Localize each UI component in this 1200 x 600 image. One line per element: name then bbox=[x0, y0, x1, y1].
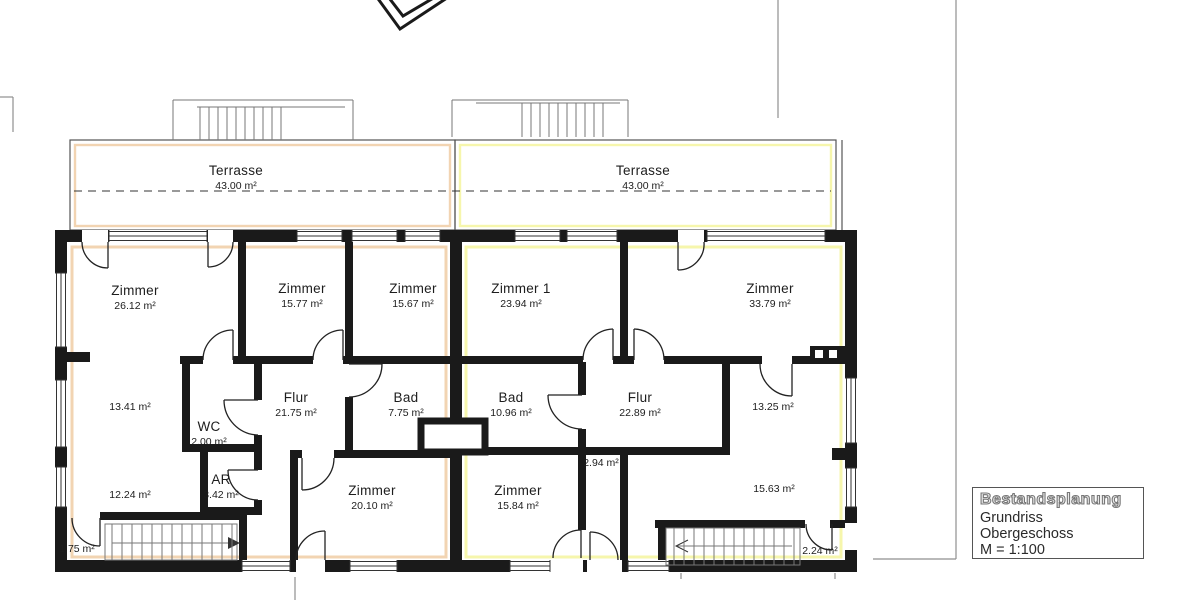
room-name: Zimmer bbox=[278, 281, 326, 297]
room-area: 20.10 m² bbox=[348, 500, 396, 513]
dim-label-left-lower: 12.24 m² bbox=[109, 489, 150, 502]
room-label-zimmer-26: Zimmer 26.12 m² bbox=[111, 283, 159, 313]
dim-label-right-landing: 2.24 m² bbox=[802, 545, 838, 558]
room-area: 26.12 m² bbox=[111, 300, 159, 313]
room-name: Bad bbox=[388, 390, 424, 406]
room-label-flur-left: Flur 21.75 m² bbox=[275, 390, 316, 420]
room-name: WC bbox=[191, 419, 227, 435]
room-label-zimmer-3379: Zimmer 33.79 m² bbox=[746, 281, 794, 311]
room-area: 23.94 m² bbox=[491, 298, 550, 311]
room-area: 15.84 m² bbox=[494, 500, 542, 513]
room-name: Zimmer bbox=[746, 281, 794, 297]
room-name: AR bbox=[203, 472, 239, 488]
room-area: 2.00 m² bbox=[191, 436, 227, 449]
chimney-block bbox=[421, 421, 485, 452]
room-area: 15.77 m² bbox=[278, 298, 326, 311]
title-block: Bestandsplanung Grundriss Obergeschoss M… bbox=[972, 487, 1144, 559]
room-area: 22.89 m² bbox=[619, 407, 660, 420]
room-label-zimmer-1567: Zimmer 15.67 m² bbox=[389, 281, 437, 311]
room-name: Terrasse bbox=[616, 163, 670, 179]
room-label-terrasse-left: Terrasse 43.00 m² bbox=[209, 163, 263, 193]
title-block-subtitle: Grundriss Obergeschoss bbox=[980, 510, 1136, 542]
room-area: 43.00 m² bbox=[616, 180, 670, 193]
staircase-left bbox=[105, 524, 240, 560]
room-name: Flur bbox=[275, 390, 316, 406]
room-area: 10.96 m² bbox=[490, 407, 531, 420]
room-label-bad-left: Bad 7.75 m² bbox=[388, 390, 424, 420]
room-label-terrasse-right: Terrasse 43.00 m² bbox=[616, 163, 670, 193]
room-name: Zimmer bbox=[111, 283, 159, 299]
room-label-wc: WC 2.00 m² bbox=[191, 419, 227, 449]
walls bbox=[55, 230, 857, 572]
room-area: 3.42 m² bbox=[203, 489, 239, 502]
dim-label-right-upper: 13.25 m² bbox=[752, 401, 793, 414]
room-name: Terrasse bbox=[209, 163, 263, 179]
room-label-ar: AR 3.42 m² bbox=[203, 472, 239, 502]
room-name: Zimmer bbox=[494, 483, 542, 499]
title-block-scale: M = 1:100 bbox=[980, 542, 1136, 558]
room-area: 21.75 m² bbox=[275, 407, 316, 420]
room-label-zimmer-1577: Zimmer 15.77 m² bbox=[278, 281, 326, 311]
wall-pier-detail bbox=[810, 346, 845, 362]
room-area: 43.00 m² bbox=[209, 180, 263, 193]
room-label-zimmer-1584: Zimmer 15.84 m² bbox=[494, 483, 542, 513]
room-area: 33.79 m² bbox=[746, 298, 794, 311]
room-area: 7.75 m² bbox=[388, 407, 424, 420]
room-label-zimmer-2010: Zimmer 20.10 m² bbox=[348, 483, 396, 513]
dim-label-right-shaft: 2.94 m² bbox=[583, 457, 619, 470]
exterior-stairs-right bbox=[452, 100, 628, 137]
room-name: Bad bbox=[490, 390, 531, 406]
title-block-title: Bestandsplanung bbox=[980, 491, 1136, 509]
room-name: Flur bbox=[619, 390, 660, 406]
exterior-stairs-left bbox=[173, 100, 353, 140]
room-label-flur-right: Flur 22.89 m² bbox=[619, 390, 660, 420]
room-name: Zimmer 1 bbox=[491, 281, 550, 297]
room-label-bad-right: Bad 10.96 m² bbox=[490, 390, 531, 420]
room-name: Zimmer bbox=[389, 281, 437, 297]
dim-label-right-lower: 15.63 m² bbox=[753, 483, 794, 496]
stair-direction-arrow-right bbox=[228, 537, 240, 549]
floor-plan-canvas: Terrasse 43.00 m² Terrasse 43.00 m² Zimm… bbox=[0, 0, 1200, 600]
north-arrow-icon bbox=[376, 0, 456, 29]
room-area: 15.67 m² bbox=[389, 298, 437, 311]
room-name: Zimmer bbox=[348, 483, 396, 499]
staircase-right bbox=[666, 528, 800, 565]
dim-label-left-landing: 1.75 m² bbox=[59, 543, 95, 556]
dim-label-left-upper: 13.41 m² bbox=[109, 401, 150, 414]
room-label-zimmer-1: Zimmer 1 23.94 m² bbox=[491, 281, 550, 311]
